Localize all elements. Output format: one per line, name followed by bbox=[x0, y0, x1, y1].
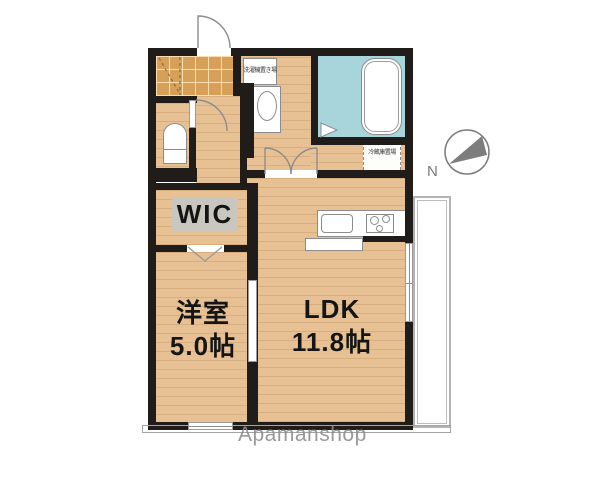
bathtub-icon bbox=[361, 58, 402, 135]
western-room-label: 洋室 5.0帖 bbox=[156, 297, 250, 363]
ldk-area: 11.8帖 bbox=[258, 326, 406, 359]
floorplan-canvas: 洗濯機置き場 冷蔵庫置場 bbox=[0, 0, 600, 480]
refrigerator-label: 冷蔵庫置場 bbox=[363, 150, 401, 157]
double-door-opening bbox=[265, 170, 317, 178]
western-room-area: 5.0帖 bbox=[156, 330, 250, 363]
compass-icon bbox=[445, 130, 489, 174]
burner-icon bbox=[376, 225, 383, 232]
kitchen-sink-icon bbox=[321, 214, 353, 233]
window-balcony-door bbox=[405, 243, 413, 322]
ldk-name: LDK bbox=[258, 293, 406, 326]
toilet-tank-icon bbox=[163, 149, 187, 164]
watermark-text: Apamanshop bbox=[238, 423, 367, 447]
window-center-line bbox=[189, 426, 232, 427]
window-western-room bbox=[188, 422, 233, 430]
balcony-inner-line bbox=[417, 200, 447, 424]
balcony-outline bbox=[413, 196, 451, 428]
wall bbox=[148, 183, 250, 190]
washing-machine-label: 洗濯機置き場 bbox=[243, 68, 277, 75]
wall bbox=[405, 48, 413, 243]
wall bbox=[231, 48, 413, 56]
kitchen-partition-wall bbox=[363, 236, 406, 242]
washbasin-bowl-icon bbox=[257, 91, 277, 121]
kitchen-lower-counter bbox=[305, 238, 363, 251]
entrance-door-arc-icon bbox=[198, 16, 230, 48]
wall bbox=[317, 170, 406, 178]
wic-door-opening bbox=[187, 245, 224, 252]
wall bbox=[311, 137, 406, 145]
bathtub-inner-line bbox=[364, 61, 399, 132]
wic-label-box: WIC bbox=[172, 198, 238, 231]
wall bbox=[148, 48, 156, 430]
wall bbox=[240, 170, 265, 178]
wall bbox=[311, 48, 318, 145]
burner-icon bbox=[370, 216, 379, 225]
wall bbox=[189, 126, 196, 168]
western-room-name: 洋室 bbox=[156, 297, 250, 330]
genkan-tile-floor bbox=[156, 56, 233, 97]
ldk-label: LDK 11.8帖 bbox=[258, 293, 406, 359]
window-meeting-rail bbox=[406, 283, 412, 284]
wall bbox=[156, 168, 197, 182]
compass-north-label: N bbox=[427, 163, 438, 180]
wall bbox=[156, 245, 187, 252]
burner-icon bbox=[382, 215, 390, 223]
toilet-door-leaf bbox=[189, 100, 196, 128]
wic-label: WIC bbox=[177, 199, 234, 230]
entrance-opening bbox=[197, 48, 231, 56]
toilet-bowl-icon bbox=[163, 123, 187, 151]
wall bbox=[224, 245, 250, 252]
wall bbox=[240, 83, 254, 158]
wall bbox=[405, 322, 413, 430]
